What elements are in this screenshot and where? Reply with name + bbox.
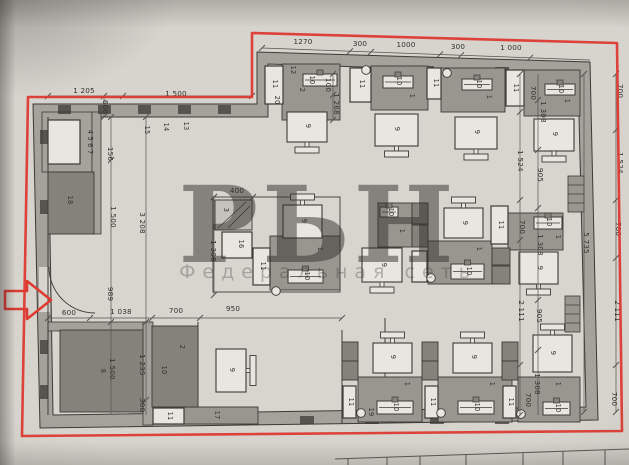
- cabinet-block: [502, 361, 518, 380]
- cabinet-block: [342, 361, 358, 380]
- chair-circle: [362, 66, 371, 75]
- room-label: 14: [162, 123, 170, 132]
- desk-stand: [471, 338, 475, 343]
- chair-circle: [443, 69, 452, 78]
- dimension-text: 1 000: [500, 43, 522, 52]
- wall-dash: [40, 385, 48, 399]
- room-label: 11: [271, 80, 279, 89]
- table-top-edge: [335, 449, 629, 459]
- desk-stand: [552, 151, 556, 156]
- room-label: 10: [545, 218, 553, 227]
- desk-stand: [370, 287, 394, 293]
- dimension-text: 156: [106, 147, 115, 162]
- dimension-text: 300: [138, 398, 147, 413]
- dimension-text: 905: [535, 309, 544, 323]
- room-label: 13: [182, 122, 190, 131]
- room-label: 9: [304, 124, 312, 128]
- room-label: 11: [166, 412, 174, 421]
- dimension-text: 1 235: [138, 354, 147, 376]
- dimension-text: 1 524: [516, 150, 525, 172]
- desk-stand: [527, 289, 551, 295]
- room-label: 9: [473, 130, 481, 134]
- room-label: 18: [66, 196, 74, 205]
- room-label: 9: [393, 127, 401, 131]
- room-label: 12: [289, 66, 297, 75]
- room-label: 10: [475, 80, 483, 89]
- desk-stand: [295, 147, 319, 153]
- room-label: 9: [461, 221, 469, 225]
- room-label: 1: [408, 94, 416, 98]
- cabinet-block: [342, 342, 358, 361]
- room-label: 8: [99, 369, 107, 373]
- tray-knob: [473, 397, 479, 402]
- dimension-text: 700: [529, 86, 538, 101]
- tray-knob: [392, 397, 398, 402]
- room-label: 2: [178, 345, 186, 349]
- dimension-text: 950: [226, 304, 241, 313]
- room-label: 1: [485, 95, 493, 99]
- dimension-text: 100: [324, 78, 333, 93]
- floor-plan-photo: 1 2051 500600127030010003001 0001001 268…: [0, 0, 629, 465]
- dimension-text: 1 500: [108, 358, 117, 380]
- dimension-text: 1 308: [536, 234, 545, 256]
- watermark-tagline: Федеральная сеть: [179, 261, 477, 283]
- room-label: 11: [347, 398, 355, 407]
- dimension-text: 300: [353, 39, 368, 48]
- desk-stand: [462, 203, 466, 208]
- room-label: 10: [160, 366, 168, 375]
- room-label: 19: [367, 408, 375, 417]
- room-label: 9: [551, 132, 559, 136]
- room-label: 4 5 6 7: [86, 130, 94, 154]
- dimension-text: 3 208: [138, 212, 147, 234]
- room-label: 1: [554, 235, 562, 239]
- dimension-text: 700: [169, 306, 184, 315]
- dimension-text: 700: [518, 220, 527, 235]
- desk-stand: [542, 156, 566, 162]
- desk-stand: [305, 142, 309, 147]
- room-label: 9: [549, 351, 557, 355]
- room-label: 10: [308, 76, 316, 85]
- desk-stand: [464, 154, 488, 160]
- room-label: 11: [497, 221, 505, 230]
- room-label: 11: [512, 84, 520, 93]
- room-label: 10: [554, 404, 562, 413]
- wall-dash: [300, 416, 314, 424]
- tray-knob: [554, 398, 560, 403]
- dimension-text: 300: [451, 42, 466, 51]
- room-label: 11: [432, 79, 440, 88]
- dimension-text: 1270: [293, 37, 312, 46]
- wall-dash: [40, 340, 48, 354]
- cabinet-block: [492, 266, 510, 284]
- desk-stand: [391, 338, 395, 343]
- watermark: РЬН Федеральная сеть: [178, 162, 477, 287]
- dimension-text: 600: [62, 308, 77, 317]
- room-label: 9: [228, 368, 236, 372]
- desk-stand: [551, 330, 555, 335]
- dimension-text: 700: [610, 392, 619, 407]
- title-block-table: [335, 449, 629, 465]
- dimension-text: 1000: [396, 40, 415, 49]
- cabinet-block: [492, 248, 510, 265]
- dimension-text: 600: [101, 100, 110, 115]
- floor-plan: 1 2051 500600127030010003001 0001001 268…: [0, 0, 629, 465]
- room-label: 2: [298, 88, 306, 92]
- dimension-text: 1 205: [73, 86, 95, 95]
- room-label: 1: [563, 99, 571, 103]
- room-label: 1: [403, 382, 411, 386]
- chair-circle: [357, 409, 366, 418]
- dimension-text: 1 038: [110, 307, 132, 316]
- cabinet-block: [422, 342, 438, 361]
- room-label: 15: [143, 126, 151, 135]
- room-label: 10: [473, 403, 481, 412]
- desk-stand: [474, 149, 478, 154]
- desk-stand: [541, 324, 565, 330]
- wall-dash: [40, 200, 48, 214]
- wall-dash: [58, 105, 71, 114]
- room-label: 10: [395, 77, 403, 86]
- room-label: 20: [273, 96, 281, 105]
- cabinet-block: [152, 326, 198, 407]
- dimension-text: 700: [524, 393, 533, 408]
- chair-circle: [272, 287, 281, 296]
- room-label: 1: [488, 382, 496, 386]
- room-label: 9: [470, 355, 478, 359]
- desk-stand: [381, 332, 405, 338]
- room-label: 11: [429, 398, 437, 407]
- cabinet-block: [422, 361, 438, 380]
- room-label: 11: [507, 398, 515, 407]
- room-label: 9: [536, 266, 544, 270]
- desk-stand: [250, 356, 256, 386]
- cabinet-block: [502, 342, 518, 361]
- room-label: 9: [389, 355, 397, 359]
- wall-dash: [218, 105, 231, 114]
- room-label: 1: [554, 382, 562, 386]
- room-label: 1: [475, 247, 483, 251]
- room-label: 10: [392, 403, 400, 412]
- wall-dash: [138, 105, 151, 114]
- dimension-text: 989: [106, 287, 115, 302]
- wall-dash: [178, 105, 191, 114]
- room-label: 17: [213, 411, 221, 420]
- desk-stand: [395, 146, 399, 151]
- dimension-text: 2 111: [517, 300, 526, 322]
- dimension-text: 905: [536, 168, 545, 182]
- tray-knob: [317, 70, 323, 75]
- room-label: 10: [557, 85, 565, 94]
- desk-stand: [461, 332, 485, 338]
- dimension-text: 1 308: [533, 373, 542, 395]
- room-label: 11: [358, 80, 366, 89]
- dimension-text: 1 308: [539, 101, 548, 123]
- white-cabinet: [48, 120, 80, 164]
- chair-circle: [437, 409, 446, 418]
- wall-dash: [40, 130, 48, 144]
- dimension-text: 5 735: [582, 232, 591, 254]
- dimension-text: 1 268: [332, 93, 341, 115]
- desk-stand: [537, 284, 541, 289]
- desk-stand: [385, 151, 409, 157]
- dimension-text: 1 500: [109, 206, 118, 228]
